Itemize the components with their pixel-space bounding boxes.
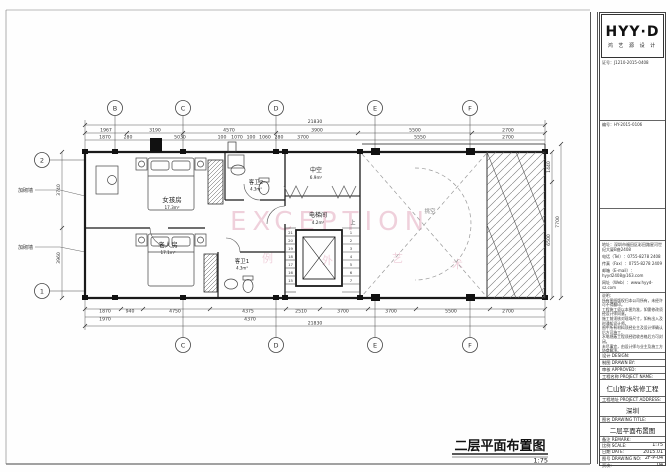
axis-label: 1 xyxy=(40,288,44,296)
company-email: 邮箱（E-mail）：hyyd2408@163.com xyxy=(600,267,665,279)
dim: 3960 xyxy=(56,252,62,264)
svg-text:2: 2 xyxy=(350,238,353,243)
axis-label: E xyxy=(373,342,377,350)
axis-label: D xyxy=(273,105,278,113)
spare-box xyxy=(600,209,665,241)
axis-label: C xyxy=(181,105,186,113)
dim: 3700 xyxy=(337,309,349,315)
dim: 5030 xyxy=(174,135,186,141)
dim: 100 xyxy=(218,135,227,141)
dim: 21830 xyxy=(308,119,323,125)
brand-logo: HYY·D xyxy=(606,24,660,40)
title-block-sidebar: HYY·D 鸿 艺 源 设 计 证号：J1210-2015-0408 编号：HY… xyxy=(599,12,666,466)
sloped-hatch-area xyxy=(487,152,545,298)
room-name: 客卫1 xyxy=(235,257,250,265)
dim: 1070 xyxy=(231,135,243,141)
dim: 3190 xyxy=(149,128,161,134)
cert-text: 证号：J1210-2015-0408 xyxy=(600,59,665,66)
dim: 5500 xyxy=(409,128,421,134)
company-box: 地址：深圳市福田区彩田路星河世纪大厦B座2408 电话（Tel）：0755-82… xyxy=(600,241,665,293)
watermark-char: 外 xyxy=(322,254,333,267)
svg-text:4: 4 xyxy=(350,254,353,259)
axis-label: F xyxy=(468,105,472,113)
dim: 21830 xyxy=(308,321,323,327)
dim: 2700 xyxy=(502,309,514,315)
stair-up-label: 上 xyxy=(350,219,355,226)
page-value: 04 xyxy=(657,463,663,468)
svg-text:7: 7 xyxy=(350,278,353,283)
axis-label: D xyxy=(273,342,278,350)
serial-text: 编号：HY-2015-0106 xyxy=(600,121,665,128)
room-area: 4.3m² xyxy=(250,187,262,192)
svg-text:19: 19 xyxy=(288,246,293,251)
date-value: 2015.01 xyxy=(643,450,663,455)
axis-label: E xyxy=(373,105,377,113)
dim: 2700 xyxy=(502,128,514,134)
annotation-label: 加砌墙 xyxy=(18,187,33,194)
axis-label: C xyxy=(181,342,186,350)
dim: 2700 xyxy=(502,135,514,141)
room-area: 4.2m² xyxy=(312,220,325,225)
axis-label: B xyxy=(113,105,117,113)
room-name: 老人房 xyxy=(158,240,178,249)
watermark: EXCEPTION 例 外 艺 术 xyxy=(230,207,463,271)
room-area: 6.9m² xyxy=(310,175,323,180)
serial-box: 编号：HY-2015-0106 xyxy=(600,121,665,209)
dim: 1967 xyxy=(100,128,112,134)
svg-text:6: 6 xyxy=(350,270,353,275)
note-line: 未尽事宜，由设计师与业主及施工方协商解决。 xyxy=(602,345,663,353)
watermark-word: EXCEPTION xyxy=(230,207,430,237)
caption-scale: 1:75 xyxy=(533,457,548,465)
dim: 1970 xyxy=(99,317,111,323)
dim: 5550 xyxy=(414,135,426,141)
sheet-binding-strip xyxy=(590,12,598,464)
room-name: 挑空 xyxy=(424,207,436,215)
masonry-annotations: 加砌墙 加砌墙 xyxy=(18,187,85,252)
room-name: 中空 xyxy=(310,166,322,174)
svg-text:5: 5 xyxy=(350,262,353,267)
dim: 4370 xyxy=(244,317,256,323)
dim: 4750 xyxy=(169,309,181,315)
notes-box: 说明： 所有图纸版权归本公司所有，未经许可不得翻印。 工程施工须以本图为准，如需… xyxy=(600,293,665,353)
logo-box: HYY·D 鸿 艺 源 设 计 xyxy=(601,14,664,58)
cert-box: 证号：J1210-2015-0408 xyxy=(600,59,665,121)
project-name-value: 仁山智水装修工程 xyxy=(600,380,665,397)
dim: 1870 xyxy=(99,309,111,315)
brand-sub: 鸿 艺 源 设 计 xyxy=(608,42,657,49)
dim: 1060 xyxy=(259,135,271,141)
drawing-title-value: 二层平面布置图 xyxy=(600,423,665,437)
dim: 2510 xyxy=(295,309,307,315)
dim: 1870 xyxy=(99,135,111,141)
scale-value: 1:75 xyxy=(652,443,663,448)
floor-plan-canvas: EXCEPTION 例 外 艺 术 B C D E F C D E F 2 1 xyxy=(0,0,592,472)
dim: 6500 xyxy=(546,234,552,246)
dim: 280 xyxy=(275,135,284,141)
dim: 3700 xyxy=(297,135,309,141)
svg-text:18: 18 xyxy=(288,254,293,259)
svg-text:3: 3 xyxy=(350,246,353,251)
dim: 4375 xyxy=(242,309,254,315)
svg-text:20: 20 xyxy=(288,238,293,243)
project-addr-value: 深圳 xyxy=(600,403,665,417)
watermark-char: 例 xyxy=(262,251,273,265)
approved-row: 审核 APPROVED: xyxy=(600,367,665,374)
watermark-char: 艺 xyxy=(392,252,403,265)
caption-title: 二层平面布置图 xyxy=(454,438,545,454)
room-area: 17.3m² xyxy=(164,205,179,210)
company-fax: 传真（Fax）：0755-8278 2409 xyxy=(600,260,665,267)
annotation-label: 加砌墙 xyxy=(18,244,33,251)
dim: 3900 xyxy=(311,128,323,134)
drawn-row: 制图 DRAWN BY: xyxy=(600,360,665,367)
dim: 5500 xyxy=(445,309,457,315)
axis-label: 2 xyxy=(40,157,44,165)
number-label: 图号 DRAWING NO: xyxy=(602,456,641,462)
drawing-caption: 二层平面布置图 1:75 xyxy=(452,438,548,465)
svg-text:21: 21 xyxy=(288,230,293,235)
svg-text:17: 17 xyxy=(288,262,293,267)
dim: 4570 xyxy=(223,128,235,134)
dim: 7700 xyxy=(555,216,561,228)
dim: 1440 xyxy=(546,161,552,173)
room-name: 电梯间 xyxy=(309,211,327,219)
svg-text:16: 16 xyxy=(288,270,293,275)
room-name: 女孩房 xyxy=(162,195,182,204)
cabinets xyxy=(204,160,223,292)
company-web: 网址（Web）：www.hyyd-sz.com xyxy=(600,279,665,291)
room-name: 客卫2 xyxy=(249,178,264,186)
design-row: 设计 DESIGN: xyxy=(600,353,665,360)
axis-label: F xyxy=(468,342,472,350)
dim: 940 xyxy=(126,309,135,315)
room-area: 4.3m² xyxy=(236,266,248,271)
dim: 100 xyxy=(247,135,256,141)
dim: 280 xyxy=(124,135,133,141)
elevator-shaft xyxy=(296,230,342,286)
svg-text:15: 15 xyxy=(288,278,293,283)
furniture-girls-room xyxy=(96,158,206,210)
room-area: 17.1m² xyxy=(160,250,175,255)
drawing-sheet: EXCEPTION 例 外 艺 术 B C D E F C D E F 2 1 xyxy=(0,0,670,472)
scale-label: 比例 SCALE: xyxy=(602,443,627,449)
company-tel: 电话（Tel）：0755-8278 2408 xyxy=(600,253,665,260)
page-row: 页次: 04 xyxy=(600,463,665,470)
dim: 3700 xyxy=(385,309,397,315)
company-address: 地址：深圳市福田区彩田路星河世纪大厦B座2408 xyxy=(600,241,665,253)
number-value: 2F-P-04 xyxy=(645,456,663,461)
date-label: 日期 DATE: xyxy=(602,450,624,456)
page-label: 页次: xyxy=(602,463,612,469)
